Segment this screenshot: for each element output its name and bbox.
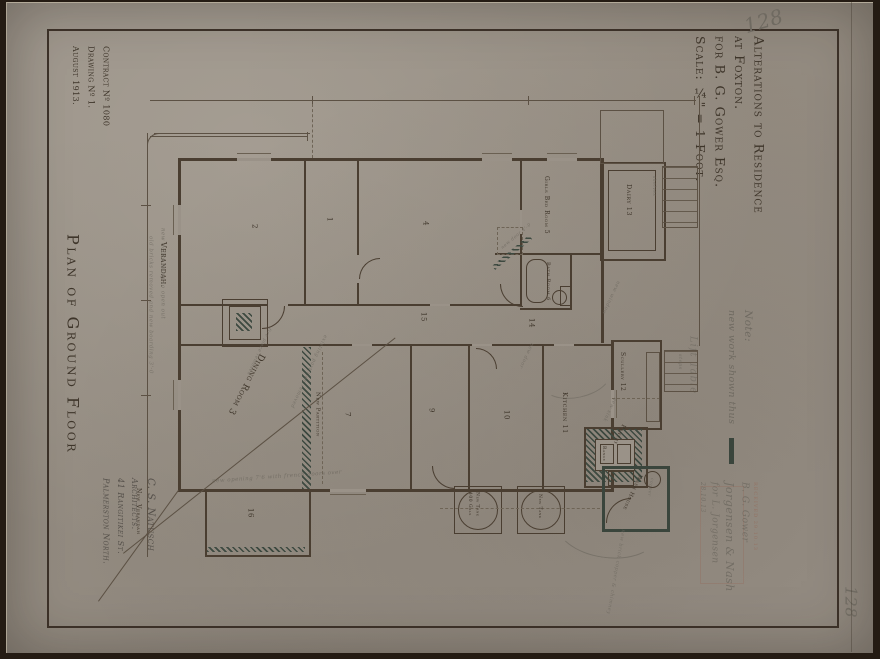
annotation-wall-note2: old bricks removed and new boarding 3'-0 (146, 236, 153, 446)
wall (357, 160, 359, 306)
window-sill (616, 390, 617, 418)
wall (520, 308, 572, 310)
tank1-label-1: New Tank (473, 492, 480, 517)
architect-street: 41 Rangitikei St. (112, 478, 126, 608)
note-block: Note: new work shown thus (724, 310, 756, 480)
tank2-label: New Tank (536, 494, 542, 519)
room-number-10: 10 (501, 410, 510, 420)
window-sill (173, 380, 174, 410)
room-label-bath: Bath Room 6 (544, 262, 551, 306)
note-label: Note: (739, 310, 756, 480)
annotation-wall-note1: new doors hung to open out (158, 228, 165, 428)
hall-number-15: 15 (418, 312, 427, 322)
dimension-tick (141, 205, 151, 206)
dimension-line (150, 136, 308, 137)
wall-opening (178, 380, 181, 410)
architect-city: Palmerston North. (98, 478, 112, 608)
wc-cistern (560, 286, 571, 306)
dimension-tick (694, 96, 695, 105)
contract-block: Contract Nº 1080 Drawing Nº 1. August 19… (68, 46, 114, 166)
wall-opening (178, 205, 181, 235)
title-line-3: for B. G. Gower Esq. (709, 36, 729, 236)
room-label-kitchen: Kitchen 11 (560, 392, 569, 452)
room-number-16: 16 (245, 508, 254, 518)
wall (410, 346, 412, 491)
removed-partition-line (322, 352, 323, 484)
paper-fold (851, 2, 852, 652)
room-number-9: 9 (426, 408, 435, 413)
plan-title: Plan of Ground Floor (62, 234, 84, 464)
title-line-1: Alterations to Residence (748, 36, 768, 236)
verandah-edge (154, 133, 310, 134)
wall-opening (554, 344, 574, 346)
window-sill (237, 153, 271, 154)
wall-opening (482, 158, 512, 161)
annotation-shelves: shelves (650, 176, 656, 196)
window-sill (482, 153, 512, 154)
wall (611, 340, 662, 342)
window-sill (547, 153, 577, 154)
steps-east (662, 166, 698, 228)
room-label-new-verandah: New Verandah (134, 488, 142, 544)
window-sill (173, 205, 174, 235)
wall-opening (430, 304, 450, 306)
tank1-label-2: 400 Gals (466, 492, 473, 517)
drawing-date: August 1913. (68, 46, 83, 166)
signature-gower: B. G. Gower (737, 482, 751, 607)
signature-date: 28.10.13 (698, 482, 707, 607)
hall-number-14: 14 (526, 318, 535, 328)
room-number-2: 2 (249, 224, 258, 229)
room-number-7: 7 (342, 412, 351, 417)
architect-name: C. S. Natusch (141, 478, 159, 608)
bench (646, 352, 660, 422)
drawing-number: Drawing Nº 1. (83, 46, 98, 166)
room-number-4: 4 (420, 221, 429, 226)
wall-opening (330, 489, 366, 492)
dimension-leader (312, 104, 313, 158)
annotation-steps: steps (676, 354, 683, 370)
room-number-1: 1 (324, 217, 333, 222)
wall-opening (352, 344, 372, 346)
wall (304, 160, 306, 306)
room-label-girls-bed: Girls Bed Room 5 (542, 176, 550, 252)
room-label-dairy: Dairy 13 (624, 184, 633, 240)
annotation-new-partition: New Partition (313, 392, 320, 472)
window-sill (330, 494, 366, 495)
tank1-label: New Tank 400 Gals (466, 492, 480, 517)
wall-opening (547, 158, 577, 161)
note-text-span: new work shown thus (726, 310, 737, 424)
wall (468, 346, 470, 491)
dimension-tick (528, 96, 529, 105)
wall (660, 340, 662, 430)
signature-block: RECEIVED 29.10.13 B. G. Gower Jorgensen … (698, 482, 758, 607)
note-text: new work shown thus (724, 310, 739, 480)
boundary-line (699, 96, 700, 346)
range-firebox (617, 444, 631, 464)
title-line-2: at Foxton. (728, 36, 748, 236)
range-label: Range (600, 446, 606, 461)
wall-opening (472, 344, 492, 346)
title-block: Alterations to Residence at Foxton. for … (690, 36, 767, 236)
received-stamp-text: RECEIVED 29.10.13 (751, 482, 759, 607)
room-label-scullery: Scullery 12 (618, 352, 626, 412)
room16-new-wall (207, 547, 305, 552)
new-work-legend-swatch (729, 438, 734, 464)
wall (542, 346, 544, 491)
wall-opening (237, 158, 271, 161)
dimension-line (150, 100, 696, 101)
contract-number: Contract Nº 1080 (98, 46, 113, 166)
porch (600, 110, 664, 164)
signature-for: for L. Jorgensen (707, 482, 721, 607)
signature-jorgensen: Jorgensen & Nash (721, 482, 738, 607)
fireplace-hearth (236, 313, 252, 331)
drawing-sheet: 128 128 Alterations to Residence at Foxt… (0, 0, 880, 659)
